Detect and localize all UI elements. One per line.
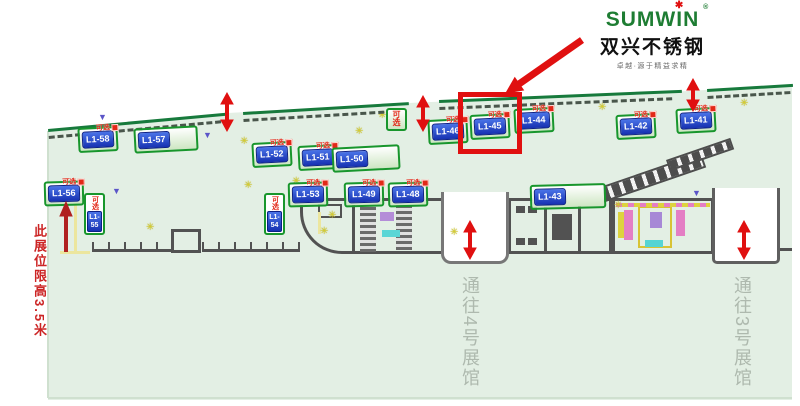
stamp-icon	[285, 138, 292, 145]
booth-l1-47-marker: 可选	[386, 108, 407, 131]
selected-stamp: 可选	[96, 122, 118, 133]
path-line	[60, 251, 90, 254]
selected-stamp: 可选	[306, 177, 328, 188]
facility-block	[645, 240, 663, 247]
marker-triangle-icon: ▼	[112, 186, 121, 196]
stamp-text: 可选	[316, 140, 331, 151]
selected-stamp: 可选	[62, 176, 84, 187]
facility-block	[516, 238, 525, 245]
stamp-text: 可选	[270, 137, 285, 148]
passage-hall4-label: 通往4号展馆	[457, 276, 483, 388]
stamp-text: 可选	[96, 122, 111, 133]
booth-number: L1-55	[87, 211, 102, 232]
selected-stamp: 可选	[634, 109, 656, 120]
booth-stalls	[360, 202, 376, 252]
stamp-icon	[649, 110, 656, 117]
booth-l1-58: L1-58 可选	[77, 126, 118, 153]
booth-l1-54: 可选 L1-54	[264, 193, 285, 235]
stamp-icon	[321, 179, 328, 186]
marker-triangle-icon: ▼	[98, 112, 107, 122]
caution-icon: ✳	[450, 227, 458, 238]
booth-l1-57: L1-57	[133, 125, 198, 153]
stamp-icon	[709, 104, 716, 111]
stamp-text: 可选	[306, 178, 320, 188]
caution-icon: ✳	[244, 180, 252, 191]
facility-strip	[616, 203, 710, 207]
booth-l1-42: L1-42 可选	[615, 113, 656, 140]
stamp-icon	[377, 179, 384, 186]
booth-l1-50: L1-50	[331, 144, 400, 172]
selected-stamp: 可选	[362, 177, 384, 188]
booth-area	[369, 151, 396, 164]
booth-number: L1-57	[138, 131, 170, 150]
caution-icon: ✳	[146, 222, 154, 233]
facility-block	[650, 212, 662, 228]
facility-block	[552, 214, 572, 240]
star-icon: ✱	[675, 0, 683, 11]
stamp-text: 可选	[362, 178, 376, 188]
brand-logo: SUMWIN✱® 双兴不锈钢 卓越·源于精益求精	[570, 8, 735, 71]
brand-tagline: 卓越·源于精益求精	[570, 61, 735, 71]
facility-block	[528, 238, 537, 245]
caution-icon: ✳	[240, 136, 248, 147]
caution-icon: ✳	[320, 226, 328, 237]
booth-stalls	[396, 204, 412, 250]
stamp-text: 可选	[634, 109, 649, 120]
passage-hall3-label: 通往3号展馆	[729, 276, 755, 388]
marker-triangle-icon: ▼	[692, 188, 701, 198]
passage-hall3	[712, 188, 780, 264]
booth-number: L1-49	[348, 186, 380, 204]
brand-wordmark: SUMWIN✱®	[606, 8, 700, 32]
selected-stamp: 可选	[389, 111, 404, 128]
booth-number: L1-48	[392, 186, 424, 204]
stamp-icon	[111, 123, 118, 130]
stamp-text: 可选	[532, 103, 547, 114]
booth-number: L1-54	[267, 211, 282, 232]
facility-block	[624, 210, 633, 240]
booth-l1-48: L1-48 可选	[388, 181, 428, 207]
stamp-text: 可选	[406, 178, 420, 188]
selected-stamp: 可选	[406, 177, 428, 188]
facility-block	[516, 206, 525, 213]
booth-l1-52: L1-52 可选	[251, 141, 292, 168]
booth-area	[567, 190, 601, 203]
stamp-icon	[421, 179, 428, 186]
selected-stamp: 可选	[90, 196, 100, 210]
stamp-icon	[547, 104, 554, 111]
caution-icon: ✳	[740, 98, 748, 109]
caution-icon: ✳	[598, 102, 606, 113]
caution-icon: ✳	[614, 200, 622, 211]
exhibition-floorplan: 通往4号展馆 通往3号展馆 ✳ ✳ ✳ ✳ ✳ ✳ ✳ ✳ ✳ ✳ ✳ ✳ ▼ …	[0, 0, 800, 406]
wall-segment	[202, 242, 300, 252]
marker-triangle-icon: ▼	[203, 130, 212, 140]
highlight-box-l1-45	[458, 92, 522, 154]
facility-block	[382, 230, 400, 237]
registered-mark: ®	[703, 4, 708, 11]
caution-icon: ✳	[328, 210, 336, 221]
booth-number: L1-50	[336, 150, 368, 169]
booth-l1-53: L1-53 可选	[288, 181, 328, 207]
booth-l1-41: L1-41 可选	[675, 107, 716, 134]
caution-icon: ✳	[355, 126, 363, 137]
kiosk-structure	[171, 229, 201, 253]
booth-l1-43: L1-43	[530, 183, 606, 210]
brand-chinese-name: 双兴不锈钢	[570, 32, 735, 59]
selected-stamp: 可选	[532, 103, 554, 114]
wall-segment	[780, 248, 792, 251]
selected-stamp: 可选	[270, 196, 280, 210]
wall-segment	[92, 242, 172, 252]
booth-l1-55: 可选 L1-55	[84, 193, 105, 235]
booth-number: L1-53	[292, 186, 324, 204]
facility-block	[676, 210, 685, 236]
booth-l1-49: L1-49 可选	[344, 181, 384, 207]
booth-area	[171, 132, 194, 145]
stamp-icon	[77, 178, 84, 185]
facility-block	[380, 212, 394, 221]
facility-block	[618, 212, 624, 238]
booth-number: L1-43	[534, 188, 566, 206]
brand-text: SUMWIN	[606, 8, 700, 31]
stamp-text: 可选	[62, 177, 76, 187]
selected-stamp: 可选	[694, 103, 716, 114]
booth-number: L1-56	[48, 185, 80, 203]
stamp-text: 可选	[694, 103, 709, 114]
booth-l1-56: L1-56 可选	[44, 180, 84, 206]
selected-stamp: 可选	[270, 137, 292, 148]
height-limit-note: 此展位限高3.5米	[30, 224, 49, 338]
